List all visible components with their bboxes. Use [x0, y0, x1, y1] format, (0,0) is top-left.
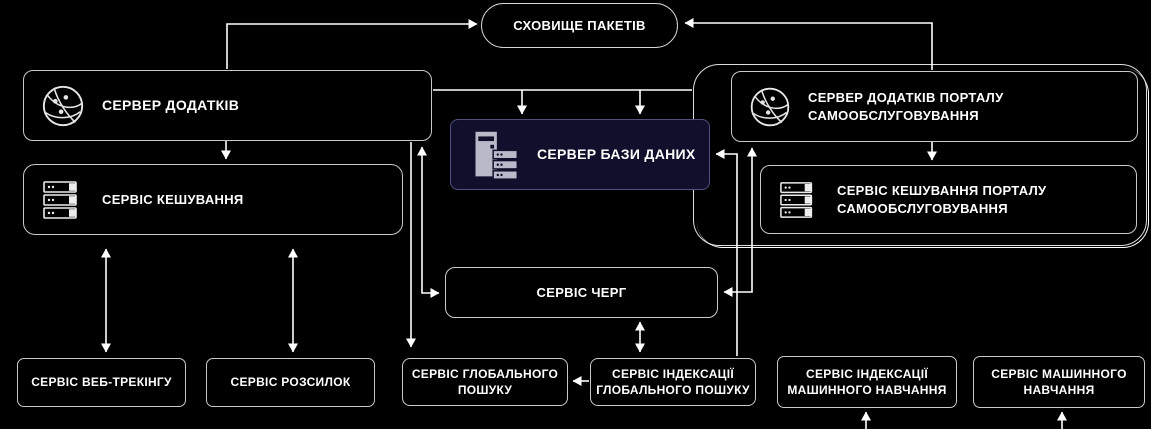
server-rack-icon: [42, 179, 84, 221]
node-label: СХОВИЩЕ ПАКЕТІВ: [513, 17, 645, 35]
node-global-search-service: СЕРВІС ГЛОБАЛЬНОГО ПОШУКУ: [402, 358, 568, 406]
node-portal-app-server: СЕРВЕР ДОДАТКІВ ПОРТАЛУ САМООБСЛУГОВУВАН…: [731, 71, 1138, 142]
node-label: СЕРВІС ІНДЕКСАЦІЇ ГЛОБАЛЬНОГО ПОШУКУ: [595, 366, 751, 398]
node-label: СЕРВІС КЕШУВАННЯ: [102, 191, 244, 209]
node-db-server: СЕРВЕР БАЗИ ДАНИХ: [450, 119, 710, 190]
node-ml-indexing-service: СЕРВІС ІНДЕКСАЦІЇ МАШИННОГО НАВЧАННЯ: [777, 356, 957, 408]
node-label: СЕРВІС КЕШУВАННЯ ПОРТАЛУ САМООБСЛУГОВУВА…: [837, 182, 1117, 217]
node-label: СЕРВІС МАШИННОГО НАВЧАННЯ: [988, 366, 1130, 398]
server-rack-icon: [779, 180, 819, 220]
node-label: СЕРВІС ГЛОБАЛЬНОГО ПОШУКУ: [409, 366, 561, 398]
node-label: СЕРВЕР ДОДАТКІВ ПОРТАЛУ САМООБСЛУГОВУВАН…: [808, 89, 1098, 124]
node-label: СЕРВІС ЧЕРГ: [537, 284, 627, 302]
node-queue-service: СЕРВІС ЧЕРГ: [445, 267, 718, 318]
node-label: СЕРВЕР ДОДАТКІВ: [102, 96, 239, 115]
edge-app-server-to-package-storage: [227, 24, 477, 69]
node-ml-service: СЕРВІС МАШИННОГО НАВЧАННЯ: [973, 356, 1145, 408]
node-app-server: СЕРВЕР ДОДАТКІВ: [23, 70, 432, 141]
globe-network-icon: [748, 85, 792, 129]
node-mailing-service: СЕРВІС РОЗСИЛОК: [206, 358, 375, 407]
node-label: СЕРВІС ІНДЕКСАЦІЇ МАШИННОГО НАВЧАННЯ: [784, 366, 950, 398]
node-portal-caching-service: СЕРВІС КЕШУВАННЯ ПОРТАЛУ САМООБСЛУГОВУВА…: [760, 165, 1137, 234]
edge-app-server-queue: [422, 147, 439, 293]
edge-portal-app-to-package-storage: [685, 23, 932, 70]
node-label: СЕРВІС РОЗСИЛОК: [231, 374, 351, 390]
node-label: СЕРВЕР БАЗИ ДАНИХ: [537, 145, 696, 164]
database-server-icon: [469, 129, 521, 181]
node-web-tracking-service: СЕРВІС ВЕБ-ТРЕКІНГУ: [17, 358, 186, 407]
node-package-storage: СХОВИЩЕ ПАКЕТІВ: [481, 3, 678, 48]
architecture-diagram: СХОВИЩЕ ПАКЕТІВ СЕРВЕР ДОДАТКІВ: [0, 0, 1151, 429]
node-search-indexing-service: СЕРВІС ІНДЕКСАЦІЇ ГЛОБАЛЬНОГО ПОШУКУ: [590, 358, 756, 406]
globe-network-icon: [40, 83, 86, 129]
node-caching-service: СЕРВІС КЕШУВАННЯ: [23, 164, 403, 235]
node-label: СЕРВІС ВЕБ-ТРЕКІНГУ: [31, 374, 172, 390]
